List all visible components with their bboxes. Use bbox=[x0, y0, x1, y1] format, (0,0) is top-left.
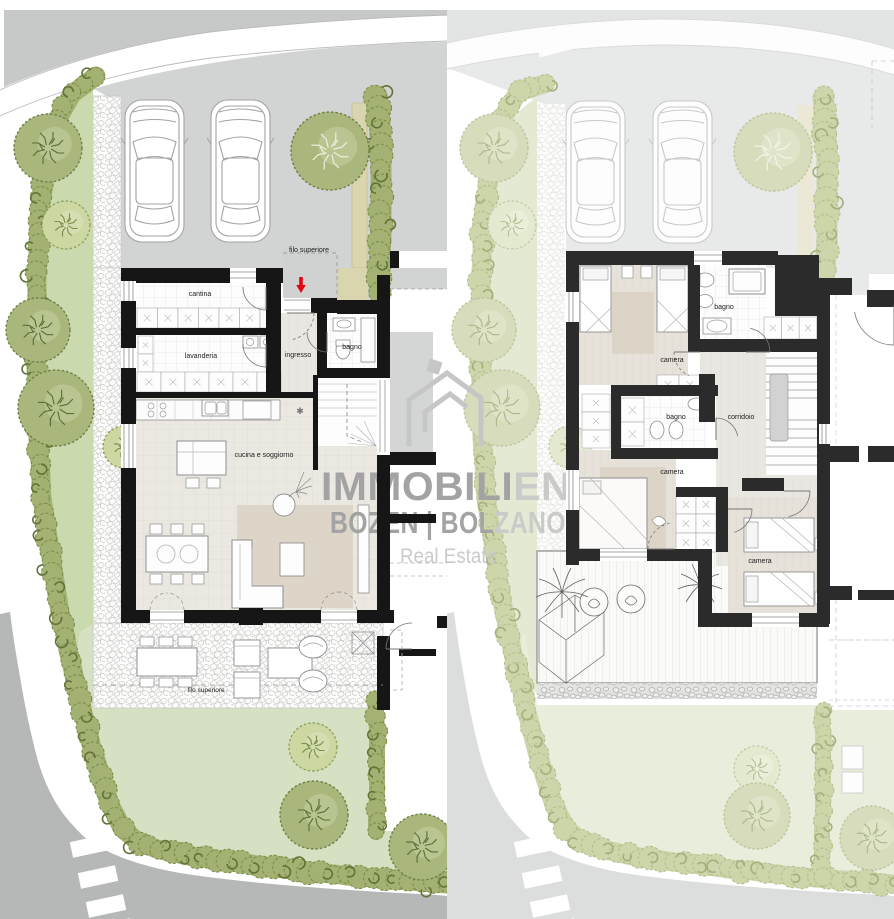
svg-text:ingresso: ingresso bbox=[285, 352, 312, 359]
svg-text:BOZEN | BOLZANO: BOZEN | BOLZANO bbox=[330, 505, 566, 540]
svg-text:lavanderia: lavanderia bbox=[185, 353, 217, 360]
svg-text:✱: ✱ bbox=[296, 406, 304, 416]
svg-text:filo superiore: filo superiore bbox=[289, 247, 329, 254]
svg-text:IMMOBILIEN: IMMOBILIEN bbox=[321, 465, 571, 509]
svg-text:cucina e soggiorno: cucina e soggiorno bbox=[235, 452, 294, 459]
svg-text:camera: camera bbox=[748, 558, 771, 565]
svg-text:bagno: bagno bbox=[714, 304, 734, 311]
svg-text:camera: camera bbox=[660, 469, 683, 476]
svg-text:Real Estate: Real Estate bbox=[400, 545, 497, 568]
svg-text:corridoio: corridoio bbox=[728, 414, 755, 421]
svg-text:filo superiore: filo superiore bbox=[187, 687, 225, 694]
svg-text:camera: camera bbox=[660, 357, 683, 364]
svg-text:bagno: bagno bbox=[342, 344, 362, 351]
svg-text:bagno: bagno bbox=[666, 414, 686, 421]
svg-text:cantina: cantina bbox=[189, 291, 212, 298]
